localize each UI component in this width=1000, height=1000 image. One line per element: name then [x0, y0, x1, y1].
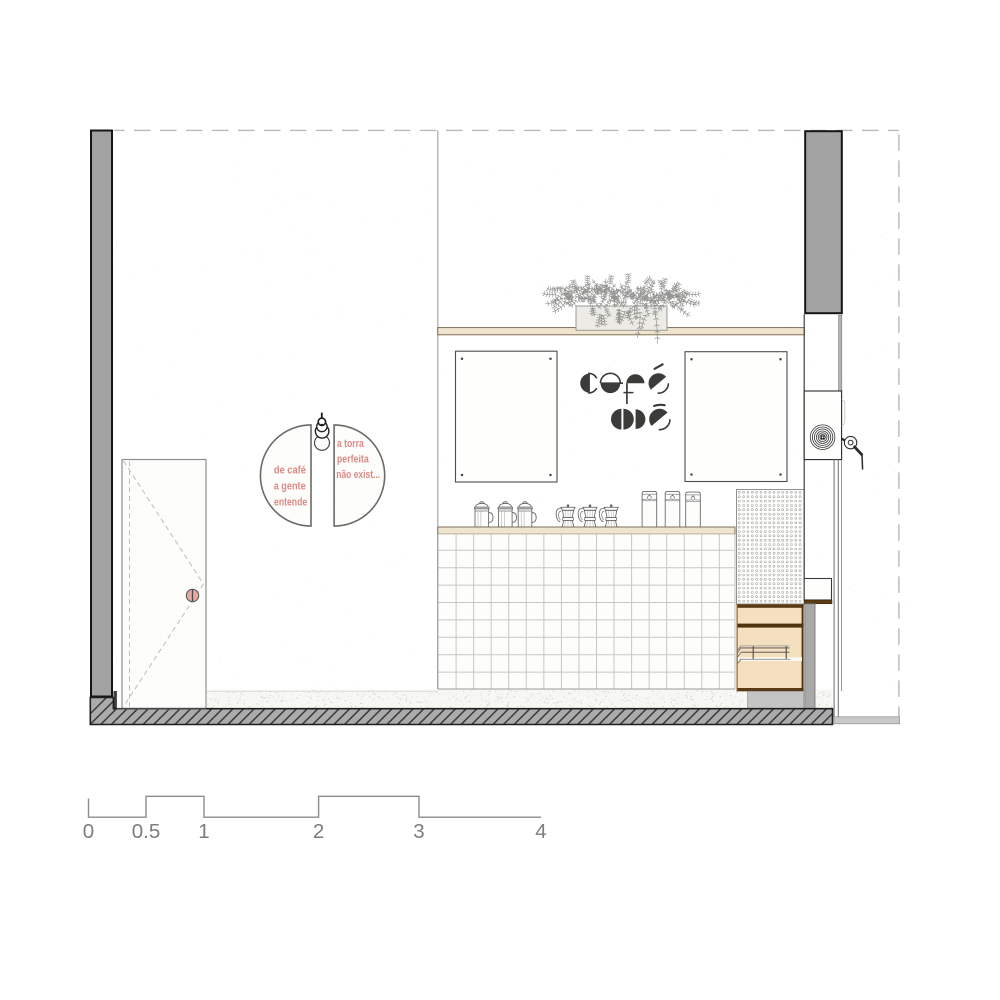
svg-text:não exist...: não exist...: [336, 469, 380, 481]
svg-text:a gente: a gente: [274, 481, 306, 493]
svg-text:4: 4: [535, 820, 546, 843]
svg-text:entende: entende: [274, 497, 307, 509]
svg-text:3: 3: [413, 820, 424, 843]
svg-text:2: 2: [313, 820, 324, 843]
svg-text:a torra: a torra: [337, 438, 365, 450]
svg-text:de café: de café: [274, 465, 306, 477]
svg-text:1: 1: [198, 820, 209, 843]
svg-text:0: 0: [83, 820, 94, 843]
svg-text:0.5: 0.5: [132, 820, 161, 843]
svg-text:perfeita: perfeita: [337, 453, 370, 465]
